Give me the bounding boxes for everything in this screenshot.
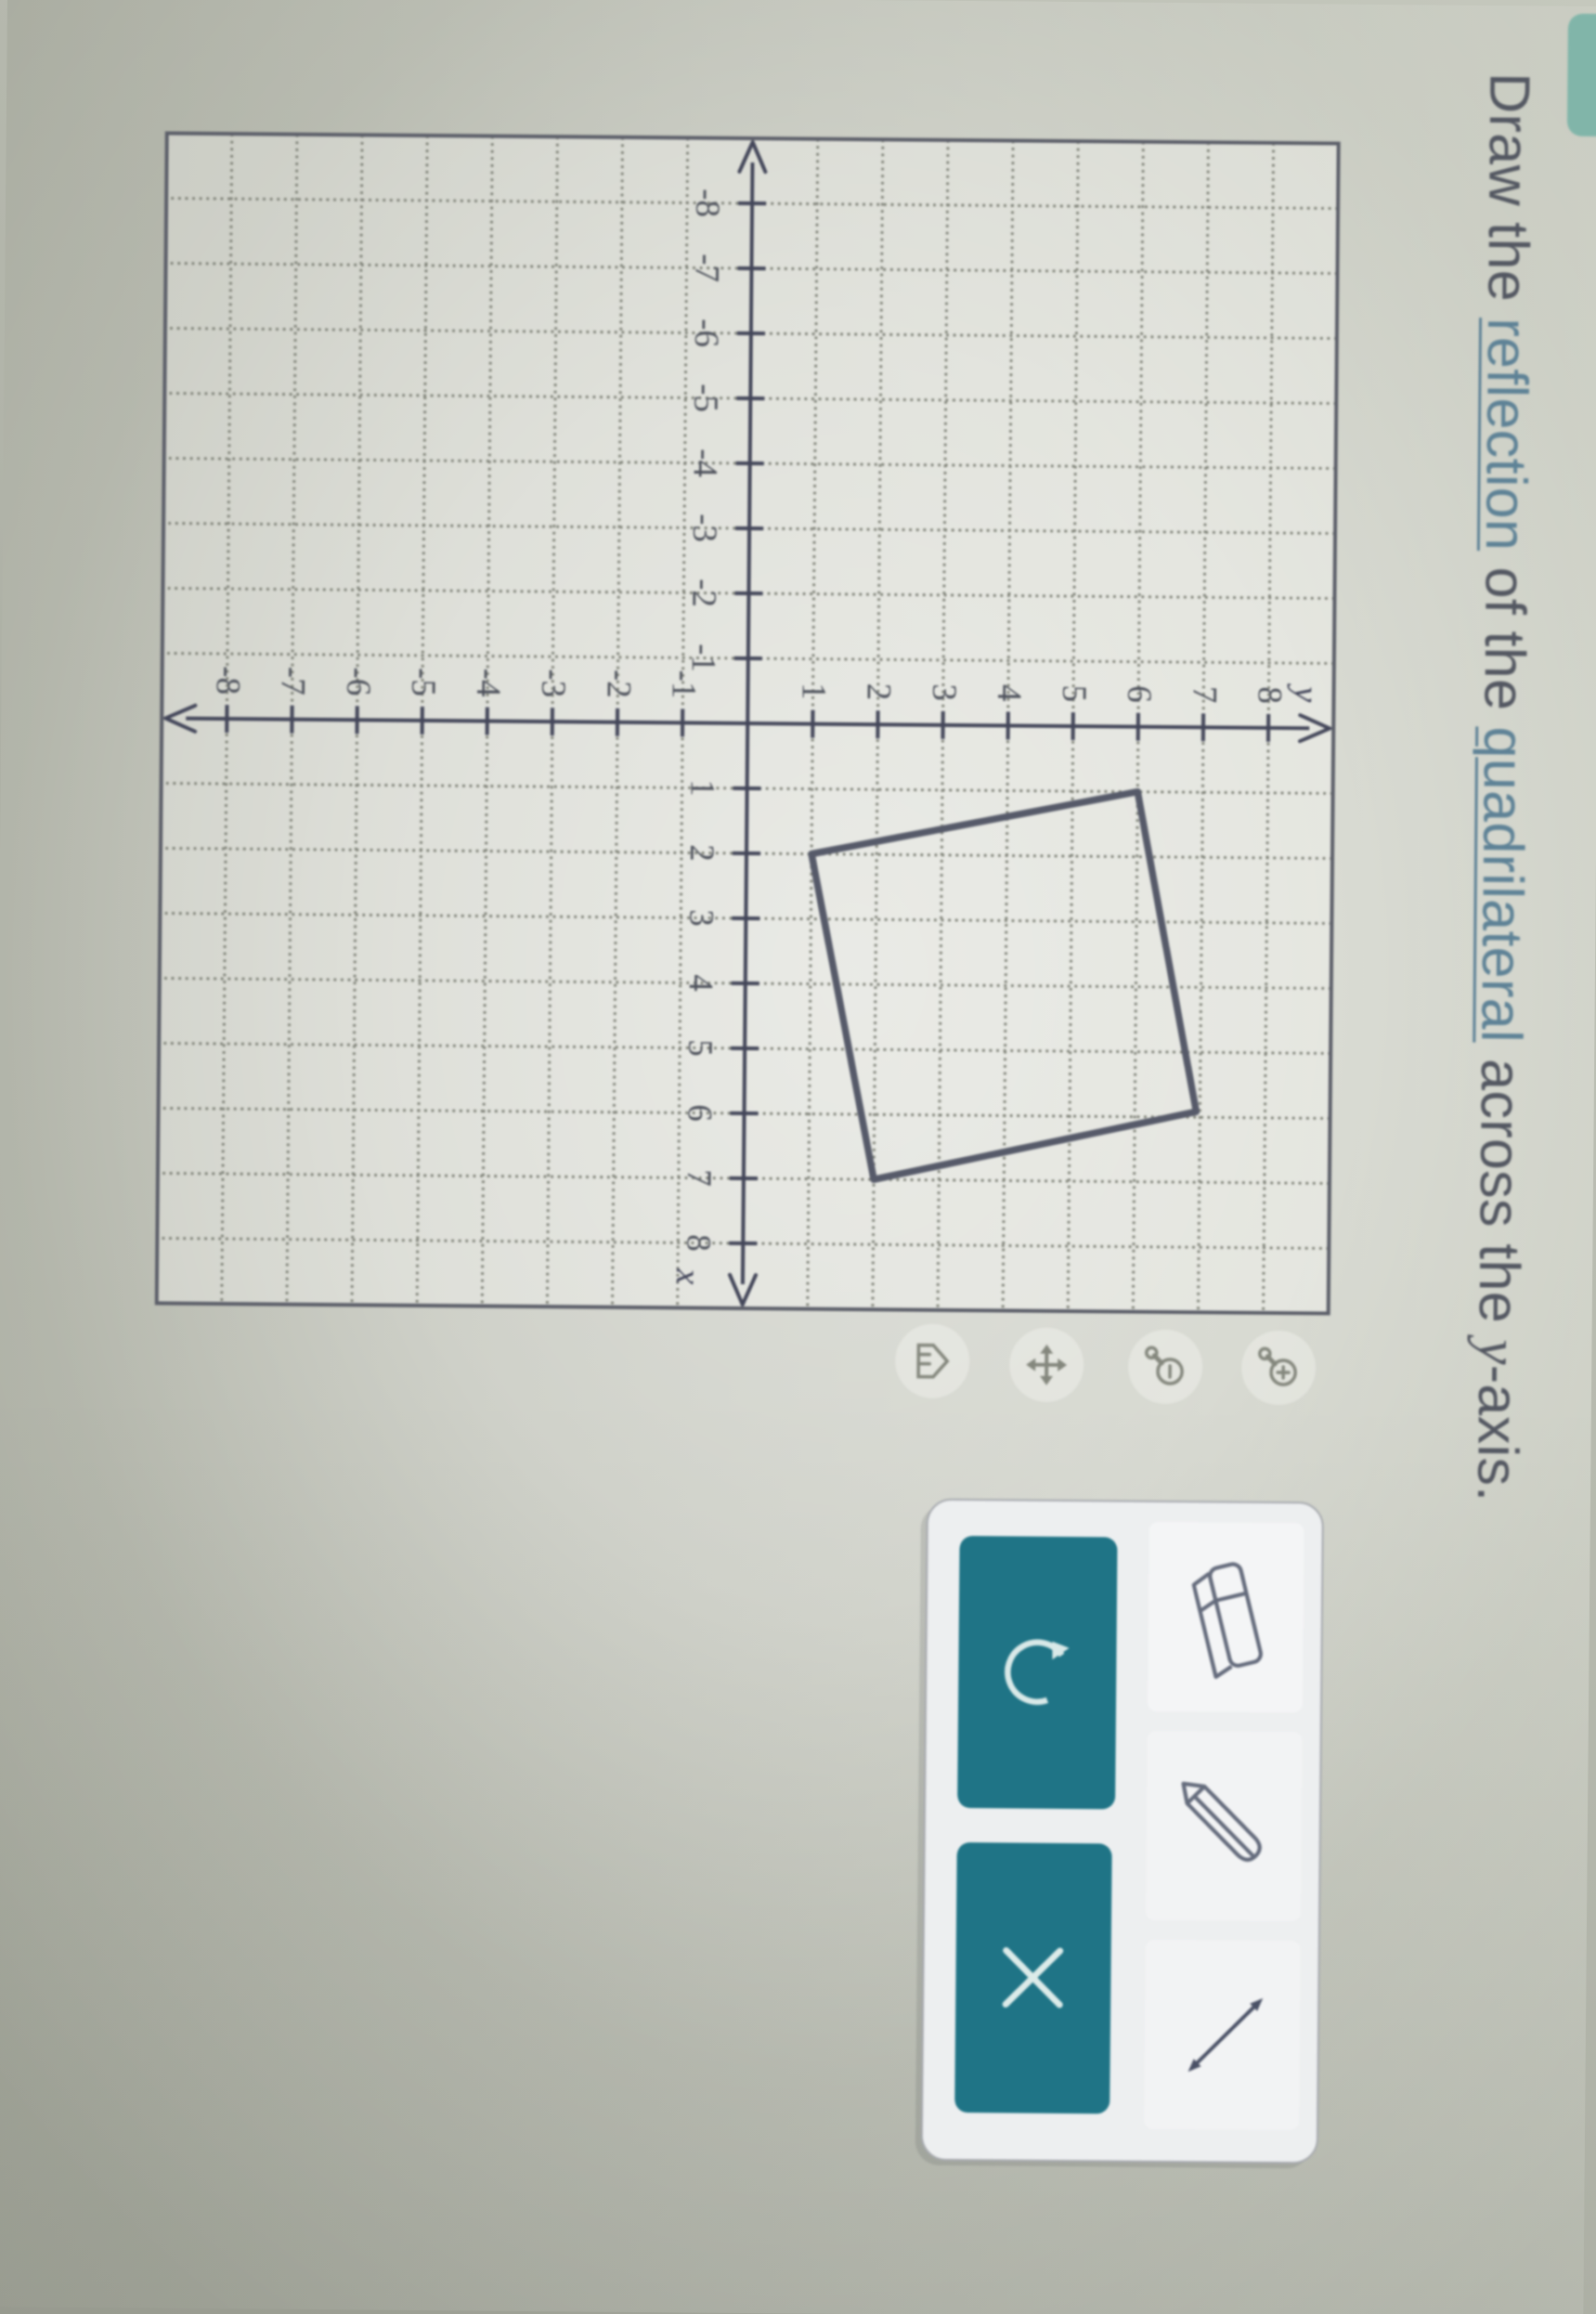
svg-text:2: 2 [860, 683, 898, 701]
svg-text:-3: -3 [685, 513, 723, 542]
svg-text:-3: -3 [534, 669, 572, 697]
svg-text:6: 6 [680, 1104, 718, 1122]
svg-text:-8: -8 [209, 666, 247, 695]
svg-text:-5: -5 [686, 383, 724, 412]
svg-text:-1: -1 [684, 643, 722, 672]
svg-text:-1: -1 [664, 669, 702, 698]
svg-text:2: 2 [682, 844, 720, 862]
svg-text:4: 4 [990, 684, 1028, 702]
svg-text:1: 1 [683, 779, 721, 797]
svg-text:5: 5 [1055, 684, 1093, 702]
svg-text:-2: -2 [599, 669, 637, 698]
svg-text:8: 8 [679, 1234, 717, 1252]
svg-text:5: 5 [681, 1039, 719, 1057]
svg-text:7: 7 [1185, 686, 1223, 704]
svg-text:-6: -6 [687, 318, 725, 347]
svg-text:-6: -6 [339, 667, 377, 695]
svg-text:-4: -4 [469, 669, 507, 697]
svg-text:-2: -2 [684, 578, 722, 607]
svg-text:-7: -7 [687, 253, 725, 282]
svg-text:-8: -8 [688, 188, 726, 217]
svg-text:-7: -7 [274, 667, 312, 695]
svg-text:-5: -5 [404, 668, 442, 696]
svg-text:4: 4 [681, 974, 720, 992]
svg-text:8: 8 [1250, 686, 1288, 704]
svg-text:-4: -4 [686, 448, 724, 477]
svg-text:1: 1 [795, 682, 833, 700]
svg-text:x: x [668, 1267, 707, 1284]
svg-text:7: 7 [680, 1169, 718, 1187]
svg-text:6: 6 [1120, 685, 1158, 703]
svg-text:3: 3 [925, 683, 963, 701]
svg-text:3: 3 [681, 909, 720, 927]
